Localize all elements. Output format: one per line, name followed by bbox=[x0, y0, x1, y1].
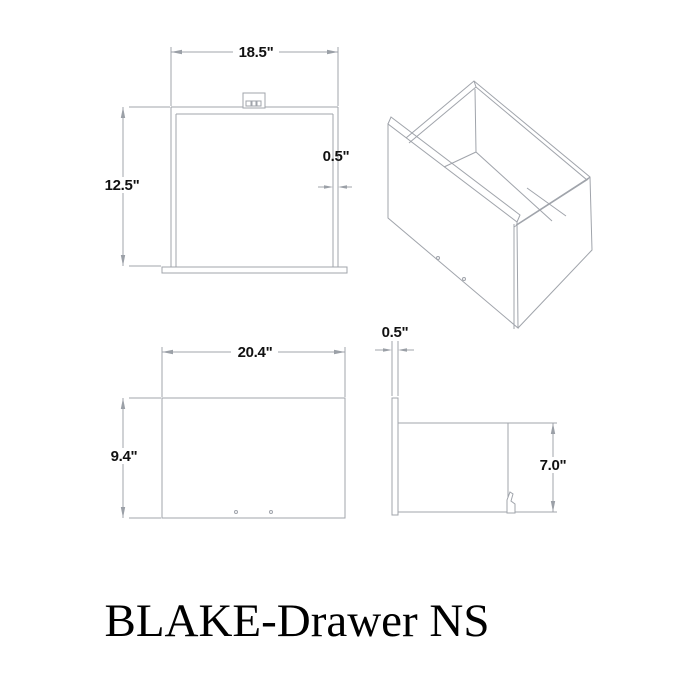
front-view-width-label: 20.4" bbox=[238, 344, 273, 361]
screw-hole bbox=[235, 511, 238, 514]
technical-drawing-page: 18.5" 12.5" 0.5" 20.4" bbox=[0, 0, 700, 700]
dimension-arrow bbox=[324, 185, 333, 189]
dimension-arrow bbox=[551, 423, 555, 434]
dimension-arrow bbox=[121, 507, 125, 518]
dimension-arrow bbox=[551, 501, 555, 512]
iso-panel-thickness-band bbox=[388, 117, 520, 329]
top-view-width-label: 18.5" bbox=[239, 44, 274, 61]
front-panel-edge bbox=[162, 267, 347, 273]
iso-interior-lines bbox=[444, 89, 566, 221]
top-view: 18.5" 12.5" 0.5" bbox=[100, 44, 352, 273]
front-panel-view: 20.4" 9.4" bbox=[106, 344, 345, 518]
side-view-thickness-label: 0.5" bbox=[382, 324, 409, 341]
side-panel-outline bbox=[392, 398, 398, 515]
drawing-canvas: 18.5" 12.5" 0.5" 20.4" bbox=[0, 0, 700, 700]
dimension-arrow bbox=[171, 50, 182, 54]
screw-hole bbox=[463, 278, 466, 281]
top-view-height-label: 12.5" bbox=[105, 177, 140, 194]
iso-front-panel bbox=[388, 124, 518, 328]
dimension-arrow bbox=[327, 50, 338, 54]
screw-hole bbox=[437, 257, 440, 260]
dimension-arrow bbox=[121, 255, 125, 266]
drawer-box-outline bbox=[171, 107, 338, 267]
drawing-title: BLAKE-Drawer NS bbox=[104, 595, 489, 647]
isometric-view bbox=[388, 81, 592, 329]
side-view: 0.5" 7.0" bbox=[375, 324, 570, 515]
top-view-thickness-label: 0.5" bbox=[323, 148, 350, 165]
side-view-height-label: 7.0" bbox=[540, 457, 567, 474]
dimension-arrow bbox=[338, 185, 347, 189]
front-panel-outline bbox=[162, 398, 345, 518]
thickness-dimension-lines bbox=[375, 341, 414, 396]
screw-hole bbox=[270, 511, 273, 514]
dimension-arrow bbox=[162, 350, 173, 354]
side-box-outline bbox=[398, 423, 557, 512]
iso-box-rims bbox=[406, 81, 592, 328]
dimension-arrow bbox=[383, 348, 392, 352]
dimension-arrow bbox=[121, 398, 125, 409]
dimension-arrow bbox=[334, 350, 345, 354]
dimension-arrow bbox=[121, 107, 125, 118]
dimension-arrow bbox=[398, 348, 407, 352]
front-view-height-label: 9.4" bbox=[111, 448, 138, 465]
